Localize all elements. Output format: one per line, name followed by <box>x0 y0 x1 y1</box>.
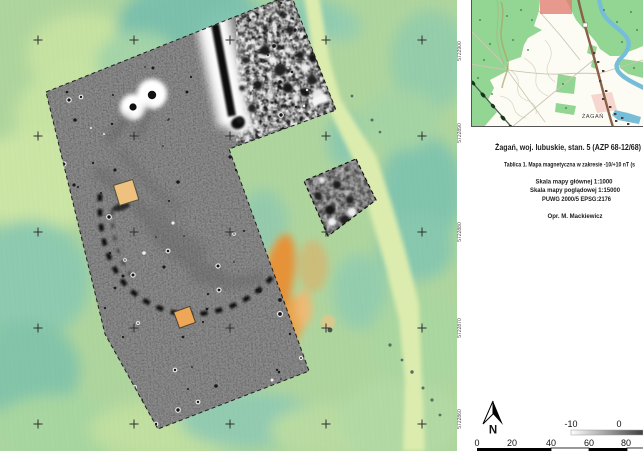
svg-text:PUWG 2000/5 EPSG:2176: PUWG 2000/5 EPSG:2176 <box>542 196 611 203</box>
svg-text:0: 0 <box>474 438 479 448</box>
svg-text:60: 60 <box>584 438 594 448</box>
svg-text:Tablica 1. Mapa magnetyczna w: Tablica 1. Mapa magnetyczna w zakresie -… <box>504 162 635 169</box>
svg-text:5722870: 5722870 <box>457 318 463 338</box>
svg-text:5722890: 5722890 <box>457 123 463 143</box>
svg-text:Opr. M. Mackiewicz: Opr. M. Mackiewicz <box>548 213 603 220</box>
svg-text:20: 20 <box>507 438 517 448</box>
svg-text:Skala mapy poglądowej 1:15000: Skala mapy poglądowej 1:15000 <box>530 187 620 194</box>
svg-text:Skala mapy głównej 1:1000: Skala mapy głównej 1:1000 <box>536 179 613 186</box>
svg-text:80: 80 <box>621 438 631 448</box>
svg-text:40: 40 <box>546 438 556 448</box>
svg-text:ŻAGAŃ: ŻAGAŃ <box>582 113 604 120</box>
svg-text:5722900: 5722900 <box>457 41 463 61</box>
svg-text:-10: -10 <box>564 419 577 429</box>
svg-text:5722880: 5722880 <box>457 222 463 242</box>
svg-text:Żagań, woj. lubuskie, stan. 5: Żagań, woj. lubuskie, stan. 5 (AZP 68-12… <box>495 142 641 152</box>
svg-text:5722860: 5722860 <box>457 409 463 429</box>
svg-text:N: N <box>489 425 497 437</box>
svg-text:0: 0 <box>616 419 621 429</box>
